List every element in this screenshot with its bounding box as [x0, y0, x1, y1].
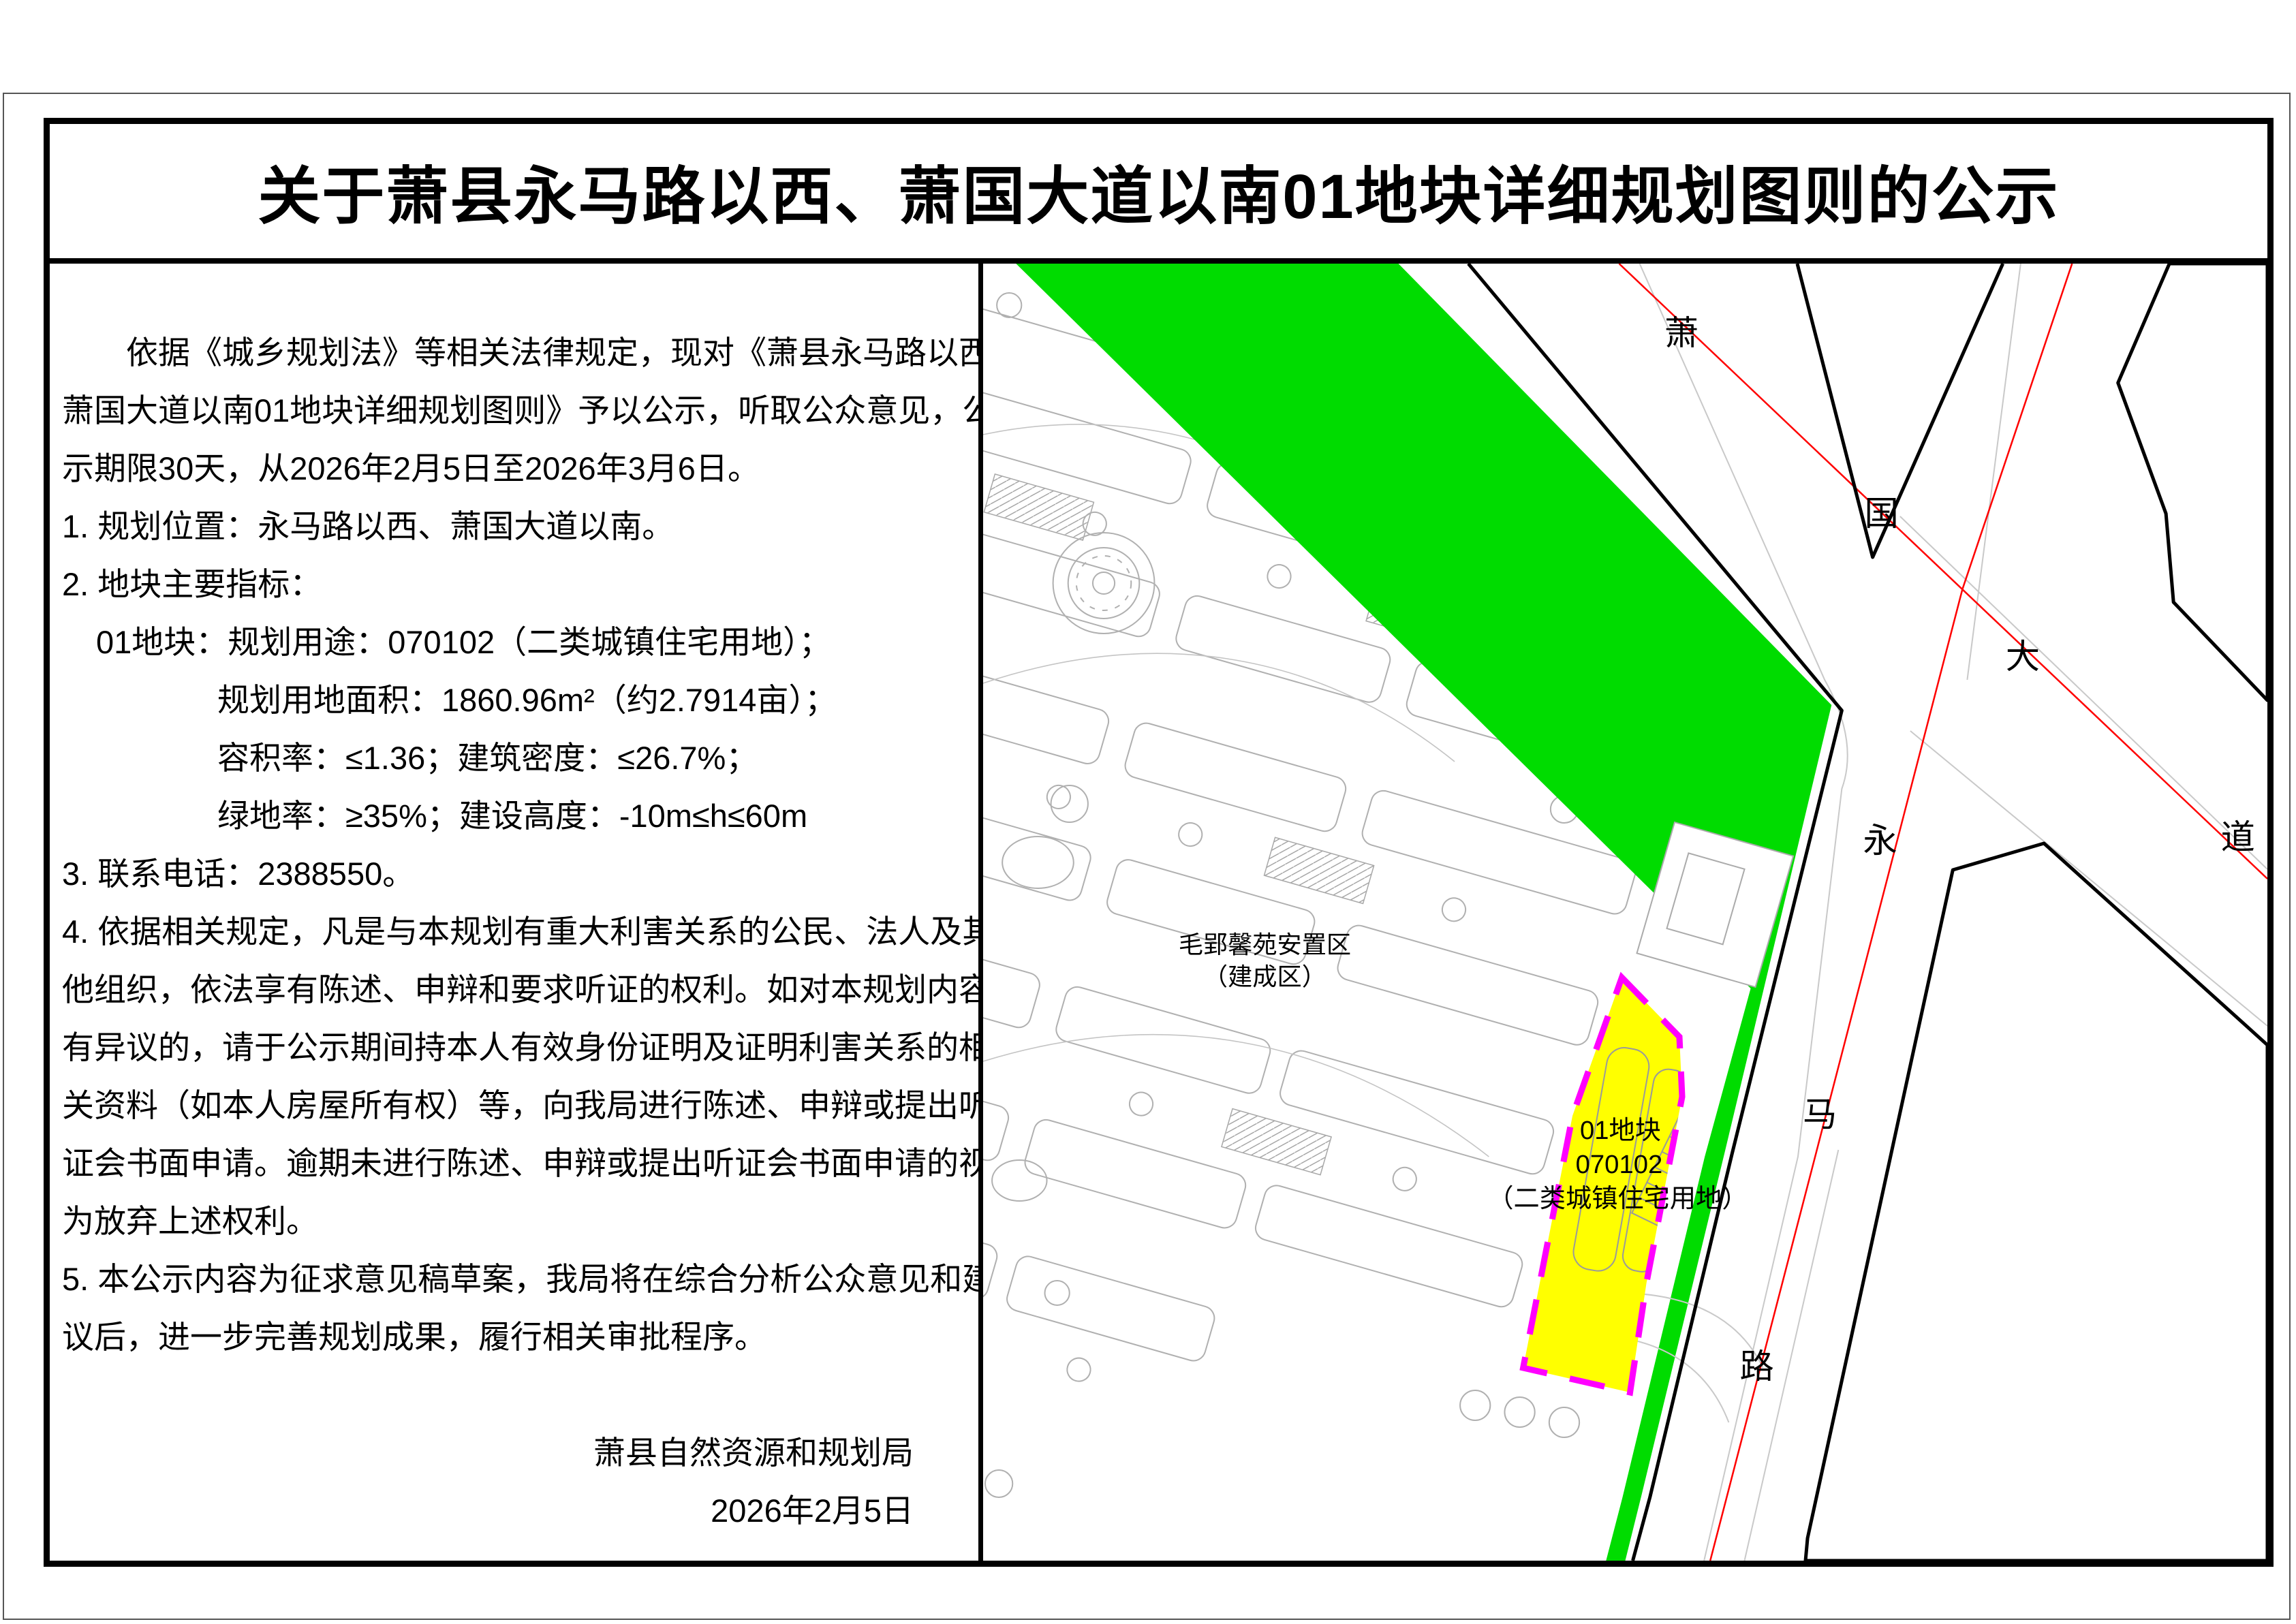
northeast-block [2118, 264, 2267, 700]
notice-line: 为放弃上述权利。 [62, 1192, 951, 1250]
notice-line: 3. 联系电话：2388550。 [62, 845, 951, 903]
southeast-block [1805, 843, 2267, 1561]
title-band: 关于萧县永马路以西、萧国大道以南01地块详细规划图则的公示 [50, 124, 2267, 264]
road-label-char: 马 [1803, 1095, 1837, 1134]
road-label-char: 永 [1863, 822, 1897, 860]
wedge-block [1797, 264, 2003, 557]
road-label-char: 萧 [1664, 314, 1698, 352]
district-label-line1: 毛郢馨苑安置区 [1179, 931, 1351, 958]
notice-line: 证会书面申请。逾期未进行陈述、申辩或提出听证会书面申请的视 [62, 1134, 951, 1192]
notice-frame: 关于萧县永马路以西、萧国大道以南01地块详细规划图则的公示 依据《城乡规划法》等… [44, 118, 2274, 1567]
notice-line: 示期限30天，从2026年2月5日至2026年3月6日。 [62, 439, 951, 497]
notice-line: 2. 地块主要指标： [62, 555, 951, 613]
notice-line: 关资料（如本人房屋所有权）等，向我局进行陈述、申辩或提出听 [62, 1076, 951, 1134]
notice-line: 绿地率：≥35%；建设高度：-10m≤h≤60m [62, 787, 951, 845]
road-label-char: 大 [2006, 638, 2040, 676]
notice-line: 5. 本公示内容为征求意见稿草案，我局将在综合分析公众意见和建 [62, 1250, 951, 1308]
public-notice-page: { "page": { "title": "关于萧县永马路以西、萧国大道以南01… [0, 0, 2296, 1624]
notice-line: 01地块：规划用途：070102（二类城镇住宅用地）； [62, 613, 951, 671]
planning-map-svg: 萧 国 大 道 永 马 路 毛郢馨苑安置区 （建成区） 01地块 070102 … [983, 264, 2267, 1561]
plaza-circle [1053, 533, 1155, 634]
notice-line: 规划用地面积：1860.96m²（约2.7914亩）； [62, 671, 951, 729]
road-label-char: 路 [1739, 1347, 1773, 1386]
plot-label-line2: 070102 [1576, 1151, 1663, 1179]
notice-line: 萧国大道以南01地块详细规划图则》予以公示，听取公众意见，公 [62, 381, 951, 439]
notice-text-panel: 依据《城乡规划法》等相关法律规定，现对《萧县永马路以西、 萧国大道以南01地块详… [50, 264, 983, 1561]
road-label-char: 道 [2221, 818, 2255, 856]
plot-label-line3: （二类城镇住宅用地） [1487, 1184, 1748, 1213]
notice-line: 有异议的，请于公示期间持本人有效身份证明及证明利害关系的相 [62, 1018, 951, 1076]
notice-line: 4. 依据相关规定，凡是与本规划有重大利害关系的公民、法人及其 [62, 903, 951, 961]
road-label-char: 国 [1865, 495, 1899, 533]
notice-line: 1. 规划位置：永马路以西、萧国大道以南。 [62, 497, 951, 555]
signature-agency: 萧县自然资源和规划局 [62, 1424, 951, 1482]
content-row: 依据《城乡规划法》等相关法律规定，现对《萧县永马路以西、 萧国大道以南01地块详… [50, 264, 2267, 1561]
district-label-line2: （建成区） [1203, 963, 1327, 990]
notice-line: 依据《城乡规划法》等相关法律规定，现对《萧县永马路以西、 [62, 324, 951, 381]
signature-date: 2026年2月5日 [62, 1482, 951, 1540]
page-title: 关于萧县永马路以西、萧国大道以南01地块详细规划图则的公示 [258, 146, 2059, 236]
notice-line: 他组织，依法享有陈述、申辩和要求听证的权利。如对本规划内容 [62, 961, 951, 1018]
notice-blank-line [62, 1366, 951, 1424]
planning-map: 萧 国 大 道 永 马 路 毛郢馨苑安置区 （建成区） 01地块 070102 … [983, 264, 2267, 1561]
plot-label-line1: 01地块 [1580, 1116, 1661, 1145]
notice-line: 容积率：≤1.36；建筑密度：≤26.7%； [62, 729, 951, 787]
notice-line: 议后，进一步完善规划成果，履行相关审批程序。 [62, 1308, 951, 1366]
